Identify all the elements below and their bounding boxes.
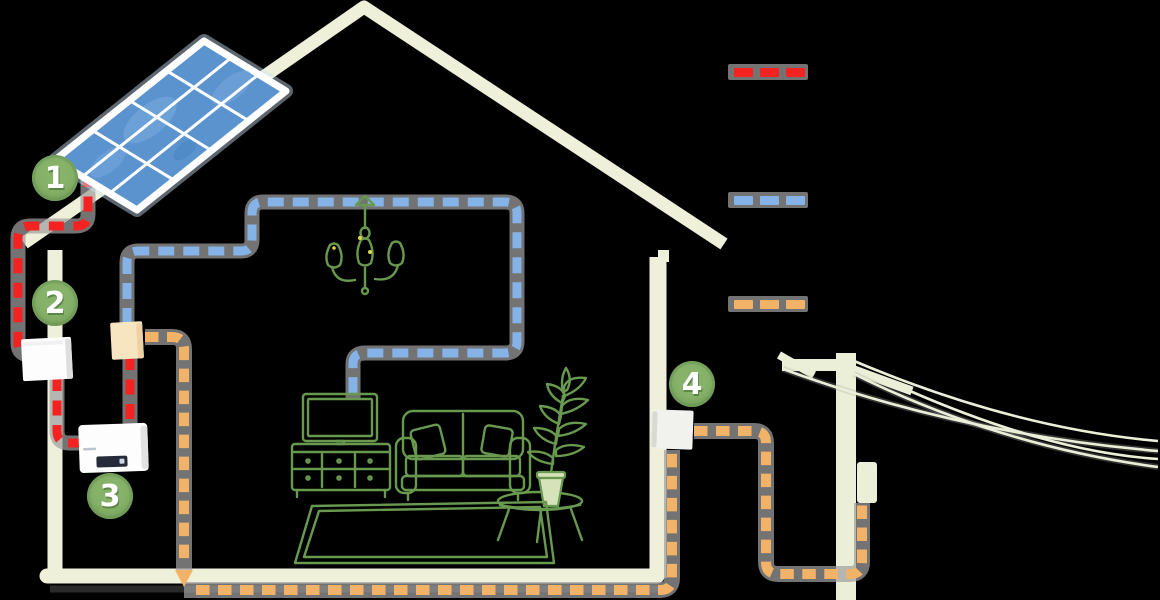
- junction-box: [110, 321, 144, 360]
- meter-box: [651, 409, 693, 449]
- chandelier-icon: [326, 196, 403, 294]
- step-badge-4: 4: [669, 361, 715, 407]
- step-badge-3: 3: [87, 473, 133, 519]
- solar-energy-diagram: 1 2 3 4: [0, 0, 1160, 600]
- step-number: 2: [45, 286, 66, 321]
- grid-dash-icon: [734, 300, 753, 309]
- coffee-table-icon: [498, 492, 582, 542]
- inverter-box: [78, 423, 149, 473]
- ac-dash-icon: [760, 196, 779, 205]
- solar-panel: [55, 41, 286, 210]
- legend-dc-cable: [728, 64, 808, 80]
- right-wall-cap: [658, 250, 669, 262]
- grid-dash-icon: [786, 300, 805, 309]
- step-badge-2: 2: [32, 280, 78, 326]
- rug-icon: [295, 502, 554, 563]
- grid-cable-path: [145, 337, 862, 590]
- step-badge-1: 1: [32, 155, 78, 201]
- dc-dash-icon: [786, 68, 805, 77]
- utility-pole: [779, 353, 1158, 600]
- plant-icon: [528, 368, 588, 506]
- ac-dash-icon: [786, 196, 805, 205]
- dc-dash-icon: [734, 68, 753, 77]
- isolator-box: [21, 337, 73, 382]
- diagram-artwork: [0, 0, 1160, 600]
- cables: [18, 172, 862, 590]
- step-number: 3: [100, 479, 121, 514]
- tv-console-icon: [292, 444, 390, 497]
- pole-service-box: [857, 462, 877, 503]
- step-number: 4: [682, 367, 703, 402]
- living-room: [292, 196, 588, 563]
- grid-cable-casing: [145, 337, 862, 590]
- dc-dash-icon: [760, 68, 779, 77]
- ac-dash-icon: [734, 196, 753, 205]
- step-number: 1: [45, 161, 66, 196]
- tv-icon: [303, 394, 377, 444]
- legend-ac-cable: [728, 192, 808, 208]
- grid-dash-icon: [760, 300, 779, 309]
- sofa-icon: [396, 411, 530, 500]
- legend-grid-cable: [728, 296, 808, 312]
